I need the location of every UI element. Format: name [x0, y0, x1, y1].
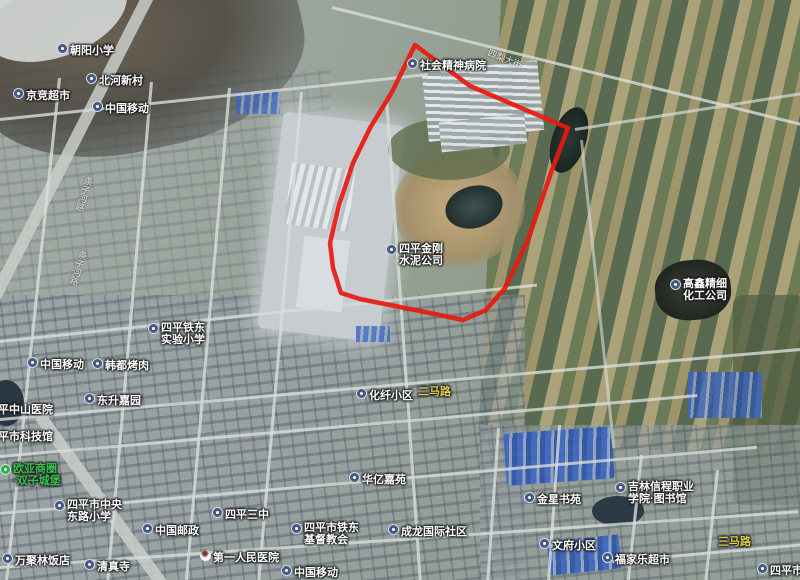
- tiedong-church[interactable]: 四平市铁东基督教会: [291, 522, 359, 546]
- telecom-poi-icon: [281, 565, 292, 576]
- china-mobile-north[interactable]: 中国移动: [92, 100, 149, 116]
- siping-no3-middle-school-text: 四平三中: [225, 506, 269, 522]
- terrain-factory-roof2: [296, 235, 350, 312]
- factory-poi-icon: [670, 279, 681, 290]
- wanjulin-restaurant[interactable]: 万聚林饭店: [2, 552, 70, 568]
- fujiale-supermarket-text: 福家乐超市: [615, 551, 670, 567]
- china-mobile-west[interactable]: 中国移动: [27, 356, 84, 372]
- mental-hospital[interactable]: 社会精神病院: [407, 57, 486, 73]
- mental-hospital-text: 社会精神病院: [420, 57, 486, 73]
- science-museum-text: 平市科技馆: [0, 428, 53, 444]
- first-peoples-hospital-text: 第一人民医院: [213, 549, 279, 565]
- community-poi-icon: [356, 388, 367, 399]
- beihe-xincun-text: 北河新村: [99, 72, 143, 88]
- chaoyang-primary-school[interactable]: 朝阳小学: [57, 42, 114, 58]
- library-poi-icon: [615, 482, 626, 493]
- wenfu-community-text: 文府小区: [552, 537, 596, 553]
- community-poi-icon: [388, 524, 399, 535]
- beihe-xincun[interactable]: 北河新村: [86, 72, 143, 88]
- terrain-blue-roofs-3: [688, 372, 762, 418]
- factory-poi-icon: [386, 244, 397, 255]
- mosque-poi-icon: [84, 559, 95, 570]
- shop-poi-icon: [13, 88, 24, 99]
- qingzhen-mosque-text: 清真寺: [97, 558, 130, 574]
- ouya-ad[interactable]: 欧亚商圈·双子城堡: [0, 463, 61, 487]
- wanjulin-restaurant-text: 万聚林饭店: [15, 552, 70, 568]
- siping-shifeng[interactable]: 四平市风: [757, 562, 800, 578]
- china-post[interactable]: 中国邮政: [142, 522, 199, 538]
- terrain-blue-roofs-5: [356, 326, 390, 342]
- china-mobile-south-text: 中国移动: [294, 564, 338, 580]
- siping-shifeng-text: 四平市风: [770, 562, 800, 578]
- wenfu-community[interactable]: 文府小区: [539, 537, 596, 553]
- jingang-cement-text: 四平金刚水泥公司: [399, 243, 443, 267]
- siping-no3-middle-school[interactable]: 四平三中: [212, 506, 269, 522]
- school-poi-icon: [57, 43, 68, 54]
- gaoxin-chemical-text: 高鑫精细化工公司: [683, 278, 727, 302]
- tiedong-experimental-school-text: 四平铁东实验小学: [161, 322, 205, 346]
- community-poi-icon: [524, 492, 535, 503]
- community-poi-icon: [349, 472, 360, 483]
- telecom-poi-icon: [92, 101, 103, 112]
- huayi-jiayuan-text: 华亿嘉苑: [362, 471, 406, 487]
- central-east-road-school-text: 四平市中央东路小学: [67, 499, 122, 523]
- chaoyang-primary-school-text: 朝阳小学: [70, 42, 114, 58]
- chenglong-community-text: 成龙国际社区: [401, 523, 467, 539]
- church-poi-icon: [291, 523, 302, 534]
- post-poi-icon: [142, 523, 153, 534]
- china-mobile-north-text: 中国移动: [105, 100, 149, 116]
- sanma-road-label[interactable]: 三马路: [718, 533, 751, 549]
- park-poi-icon: [757, 563, 768, 574]
- jinxing-shuyuan[interactable]: 金星书苑: [524, 491, 581, 507]
- china-mobile-south[interactable]: 中国移动: [281, 564, 338, 580]
- qingzhen-mosque[interactable]: 清真寺: [84, 558, 130, 574]
- handu-bbq-text: 韩都烤肉: [105, 357, 149, 373]
- zhongshan-hospital[interactable]: 平中山医院: [0, 401, 53, 417]
- jingjing-supermarket-text: 京竞超市: [26, 87, 70, 103]
- china-post-text: 中国邮政: [155, 522, 199, 538]
- jinxing-shuyuan-text: 金星书苑: [537, 491, 581, 507]
- tiedong-experimental-school[interactable]: 四平铁东实验小学: [148, 322, 205, 346]
- jilin-vocational-library[interactable]: 吉林信程职业学院·图书馆: [615, 481, 694, 505]
- restaurant-poi-icon: [2, 553, 13, 564]
- huaxian-community-text: 化纤小区: [369, 387, 413, 403]
- huayi-jiayuan[interactable]: 华亿嘉苑: [349, 471, 406, 487]
- gaoxin-chemical[interactable]: 高鑫精细化工公司: [670, 278, 727, 302]
- first-peoples-hospital[interactable]: 第一人民医院: [200, 549, 279, 565]
- hospital-cross-icon: [200, 550, 211, 561]
- telecom-poi-icon: [27, 357, 38, 368]
- dongsheng-jiayuan[interactable]: 东升嘉园: [84, 392, 141, 408]
- sanma-road-label-text: 三马路: [718, 533, 751, 549]
- erma-road-label-text: 二马路: [418, 383, 451, 399]
- ouya-ad-text: 欧亚商圈·双子城堡: [13, 463, 61, 487]
- shop-poi-icon: [602, 552, 613, 563]
- jilin-vocational-library-text: 吉林信程职业学院·图书馆: [628, 481, 694, 505]
- school-poi-icon: [148, 323, 159, 334]
- hospital-poi-icon: [407, 58, 418, 69]
- ad-house-icon: [0, 464, 11, 475]
- satellite-map[interactable]: 朝阳小学北河新村京竞超市中国移动社会精神病院四平金刚水泥公司高鑫精细化工公司四平…: [0, 0, 800, 580]
- science-museum[interactable]: 平市科技馆: [0, 428, 53, 444]
- china-mobile-west-text: 中国移动: [40, 356, 84, 372]
- school-poi-icon: [212, 507, 223, 518]
- restaurant-poi-icon: [92, 358, 103, 369]
- chenglong-community[interactable]: 成龙国际社区: [388, 523, 467, 539]
- handu-bbq[interactable]: 韩都烤肉: [92, 357, 149, 373]
- tiedong-church-text: 四平市铁东基督教会: [304, 522, 359, 546]
- zhongshan-hospital-text: 平中山医院: [0, 401, 53, 417]
- community-poi-icon: [84, 393, 95, 404]
- huaxian-community[interactable]: 化纤小区: [356, 387, 413, 403]
- central-east-road-school[interactable]: 四平市中央东路小学: [54, 499, 122, 523]
- jingjing-supermarket[interactable]: 京竞超市: [13, 87, 70, 103]
- dongsheng-jiayuan-text: 东升嘉园: [97, 392, 141, 408]
- jingang-cement[interactable]: 四平金刚水泥公司: [386, 243, 443, 267]
- school-poi-icon: [54, 500, 65, 511]
- erma-road-label[interactable]: 二马路: [418, 383, 451, 399]
- community-poi-icon: [539, 538, 550, 549]
- fujiale-supermarket[interactable]: 福家乐超市: [602, 551, 670, 567]
- community-poi-icon: [86, 73, 97, 84]
